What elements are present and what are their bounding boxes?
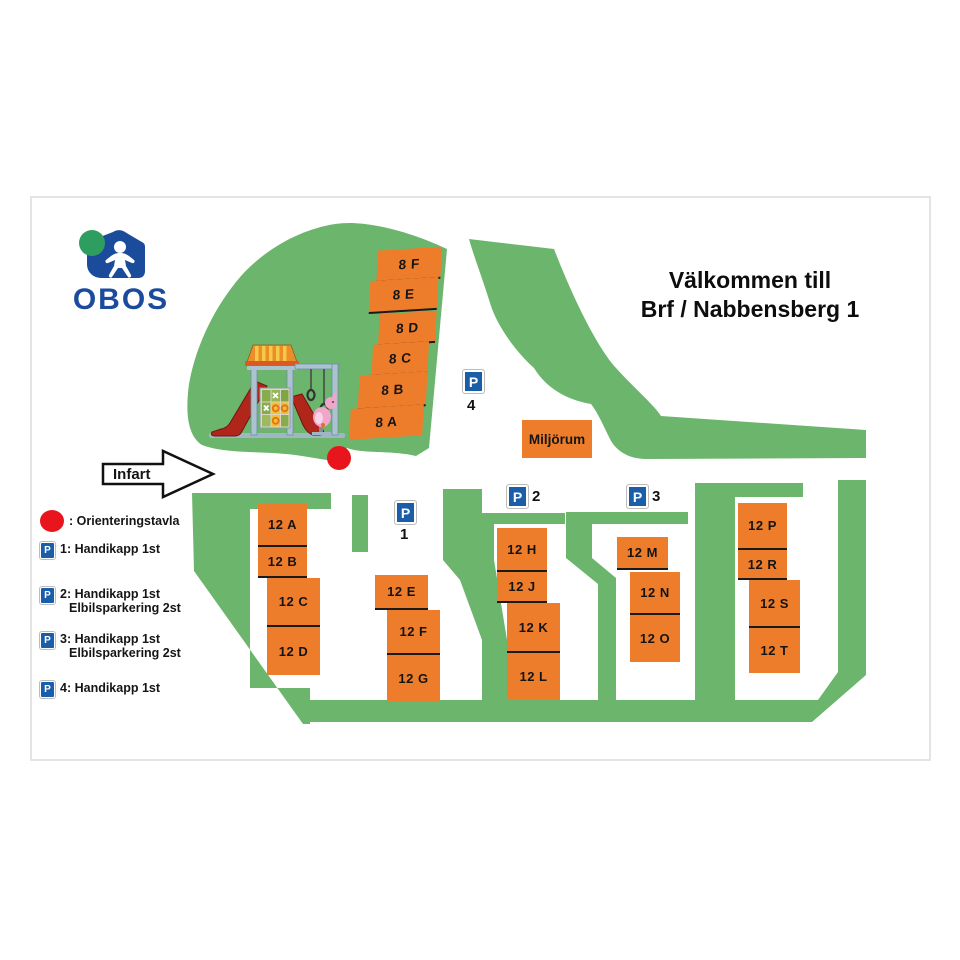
obos-person-head <box>114 241 126 253</box>
building-12D: 12 D <box>267 627 320 675</box>
page-title: Välkommen till Brf / Nabbensberg 1 <box>590 266 910 324</box>
parking-number-1: 1 <box>400 526 408 543</box>
legend-item-text: 1: Handikapp 1st <box>60 542 160 556</box>
building-12B: 12 B <box>258 547 307 578</box>
orientation-board-marker <box>327 446 351 470</box>
miljorum-building: Miljörum <box>522 420 592 458</box>
obos-wordmark: OBOS <box>73 283 169 316</box>
orientation-board: OBOS Välkommen till Brf / Nabbensberg 1 <box>0 0 960 960</box>
building-12E: 12 E <box>375 575 428 610</box>
building-12T: 12 T <box>749 628 800 673</box>
swing-ropes-icon <box>308 369 328 414</box>
legend-item-p2: P 2: Handikapp 1st Elbilsparkering 2st <box>40 587 181 615</box>
parking-sign-1-icon: P <box>395 501 416 524</box>
parking-sign-3-icon: P <box>627 485 648 508</box>
parking-sign-2-icon: P <box>507 485 528 508</box>
tower-beam <box>247 366 297 370</box>
building-12K: 12 K <box>507 603 560 653</box>
building-12S: 12 S <box>749 580 800 628</box>
parking-sign-4-icon: P <box>463 370 484 393</box>
legend-marker-row: : Orienteringstavla <box>40 510 179 532</box>
building-12R: 12 R <box>738 550 787 580</box>
parking-icon: P <box>40 587 55 604</box>
legend-item-text2: Elbilsparkering 2st <box>69 601 181 615</box>
building-12P: 12 P <box>738 503 787 550</box>
building-12M: 12 M <box>617 537 668 570</box>
legend-item-p1: P 1: Handikapp 1st <box>40 542 160 559</box>
green-strip-small <box>352 495 368 552</box>
parking-number-4: 4 <box>467 397 475 414</box>
legend-item-text: 2: Handikapp 1st <box>60 587 160 601</box>
building-12J: 12 J <box>497 572 547 603</box>
title-line2: Brf / Nabbensberg 1 <box>590 295 910 324</box>
tictactoe-panel <box>260 388 290 428</box>
parking-icon: P <box>40 681 55 698</box>
legend-marker-label: : Orienteringstavla <box>69 514 179 528</box>
building-12L: 12 L <box>507 653 560 700</box>
obos-logo: OBOS <box>68 226 178 318</box>
building-12H: 12 H <box>497 528 547 572</box>
building-12O: 12 O <box>630 615 680 662</box>
legend-item-text: 3: Handikapp 1st <box>60 632 160 646</box>
building-12A: 12 A <box>258 503 307 547</box>
parking-number-2: 2 <box>532 488 540 505</box>
building-8A: 8 A <box>349 404 424 439</box>
playground-illustration <box>203 333 351 447</box>
building-8E: 8 E <box>369 277 439 314</box>
building-stack-8: 8 F 8 E 8 D 8 C 8 B 8 A <box>346 246 451 444</box>
tower-post-left <box>251 367 257 435</box>
roof-base-bar <box>245 361 299 366</box>
title-line1: Välkommen till <box>590 266 910 295</box>
legend-item-text2: Elbilsparkering 2st <box>69 646 181 660</box>
red-marker-icon <box>40 510 64 532</box>
legend-item-p4: P 4: Handikapp 1st <box>40 681 160 698</box>
slide-left-icon <box>211 381 267 436</box>
legend-item-text: 4: Handikapp 1st <box>60 681 160 695</box>
parking-number-3: 3 <box>652 488 660 505</box>
parking-icon: P <box>40 542 55 559</box>
building-12N: 12 N <box>630 572 680 615</box>
obos-green-dot-icon <box>79 230 105 256</box>
building-12G: 12 G <box>387 655 440 702</box>
parking-icon: P <box>40 632 55 649</box>
entrance-label: Infart <box>113 466 151 483</box>
legend-item-p3: P 3: Handikapp 1st Elbilsparkering 2st <box>40 632 181 660</box>
building-12F: 12 F <box>387 610 440 655</box>
building-12C: 12 C <box>267 578 320 627</box>
